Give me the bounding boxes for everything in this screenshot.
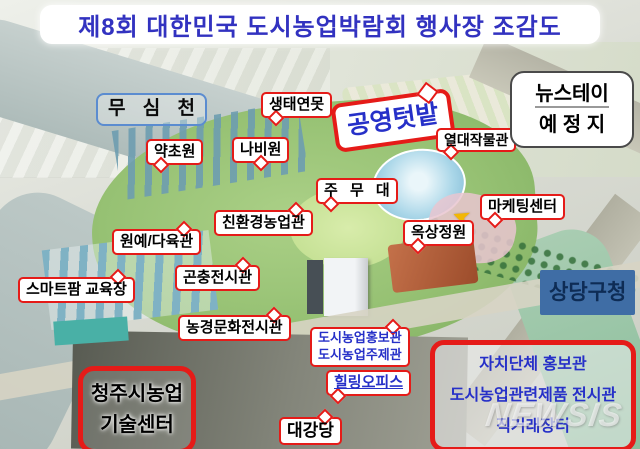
label-text: 자치단체 홍보관: [435, 349, 631, 380]
callout-horticulture-hall: 원예/다육관: [112, 229, 201, 255]
label-text: 뉴스테이: [535, 83, 609, 108]
white-building: [324, 258, 368, 316]
dark-tower-building: [307, 260, 323, 314]
callout-healing-office: 힐링오피스: [326, 370, 411, 396]
label-text: 열대작물관: [444, 132, 508, 148]
label-sangdang-office: 상당구청: [540, 270, 635, 315]
label-text: 주 무 대: [324, 182, 394, 199]
callout-butterfly-garden: 나비원: [232, 137, 289, 163]
label-text: 상당구청: [549, 281, 626, 304]
label-text: 기술센터: [83, 410, 191, 441]
label-text: 곤충전시관: [183, 269, 252, 286]
label-text: 예 정 지: [539, 114, 605, 136]
callout-main-stage: 주 무 대: [316, 178, 398, 204]
callout-insect-hall: 곤충전시관: [175, 265, 260, 291]
callout-eco-agriculture-hall: 친환경농업관: [214, 210, 313, 236]
label-cheongju-agri-center: 청주시농업 기술센터: [78, 366, 196, 449]
label-text: 친환경농업관: [222, 214, 305, 231]
callout-urban-agri-promo: 도시농업홍보관 도시농업주제관: [310, 327, 410, 367]
callout-smart-farm: 스마트팜 교육장: [18, 277, 135, 303]
label-text: 대강당: [287, 421, 334, 440]
callout-agri-culture-hall: 농경문화전시관: [178, 315, 291, 341]
callout-eco-pond: 생태연못: [261, 92, 332, 118]
label-text: 약초원: [154, 143, 195, 160]
label-newstay-site: 뉴스테이 예 정 지: [510, 71, 634, 148]
teal-roof-building: [53, 316, 128, 345]
label-text: 원예/다육관: [120, 233, 193, 250]
title-banner: 제8회 대한민국 도시농업박람회 행사장 조감도: [40, 5, 600, 44]
newsis-watermark: NEWSIS: [483, 396, 625, 434]
label-text: 스마트팜 교육장: [26, 281, 127, 298]
label-text: 생태연못: [269, 96, 324, 113]
label-text: 나비원: [240, 141, 281, 158]
callout-herb-garden: 약초원: [146, 139, 203, 165]
label-musimcheon: 무 심 천: [96, 93, 207, 126]
label-text: 공영텃밭: [345, 100, 440, 141]
callout-rooftop-garden: 옥상정원: [403, 220, 474, 246]
label-text: 도시농업홍보관: [318, 330, 402, 347]
callout-marketing-center: 마케팅센터: [480, 194, 565, 220]
label-text: 농경문화전시관: [186, 319, 283, 336]
label-text: 도시농업주제관: [318, 347, 402, 364]
label-text: 힐링오피스: [334, 374, 403, 391]
label-text: 마케팅센터: [488, 198, 557, 215]
page-title: 제8회 대한민국 도시농업박람회 행사장 조감도: [78, 7, 562, 42]
label-text: 옥상정원: [411, 224, 466, 241]
label-text: 무 심 천: [108, 98, 201, 119]
callout-grand-auditorium: 대강당: [279, 417, 342, 445]
callout-tropical-crops-hall: 열대작물관: [436, 128, 516, 152]
label-text: 청주시농업: [83, 379, 191, 410]
aerial-view-page: 제8회 대한민국 도시농업박람회 행사장 조감도 무 심 천 생태연못 약초원 …: [0, 0, 640, 449]
